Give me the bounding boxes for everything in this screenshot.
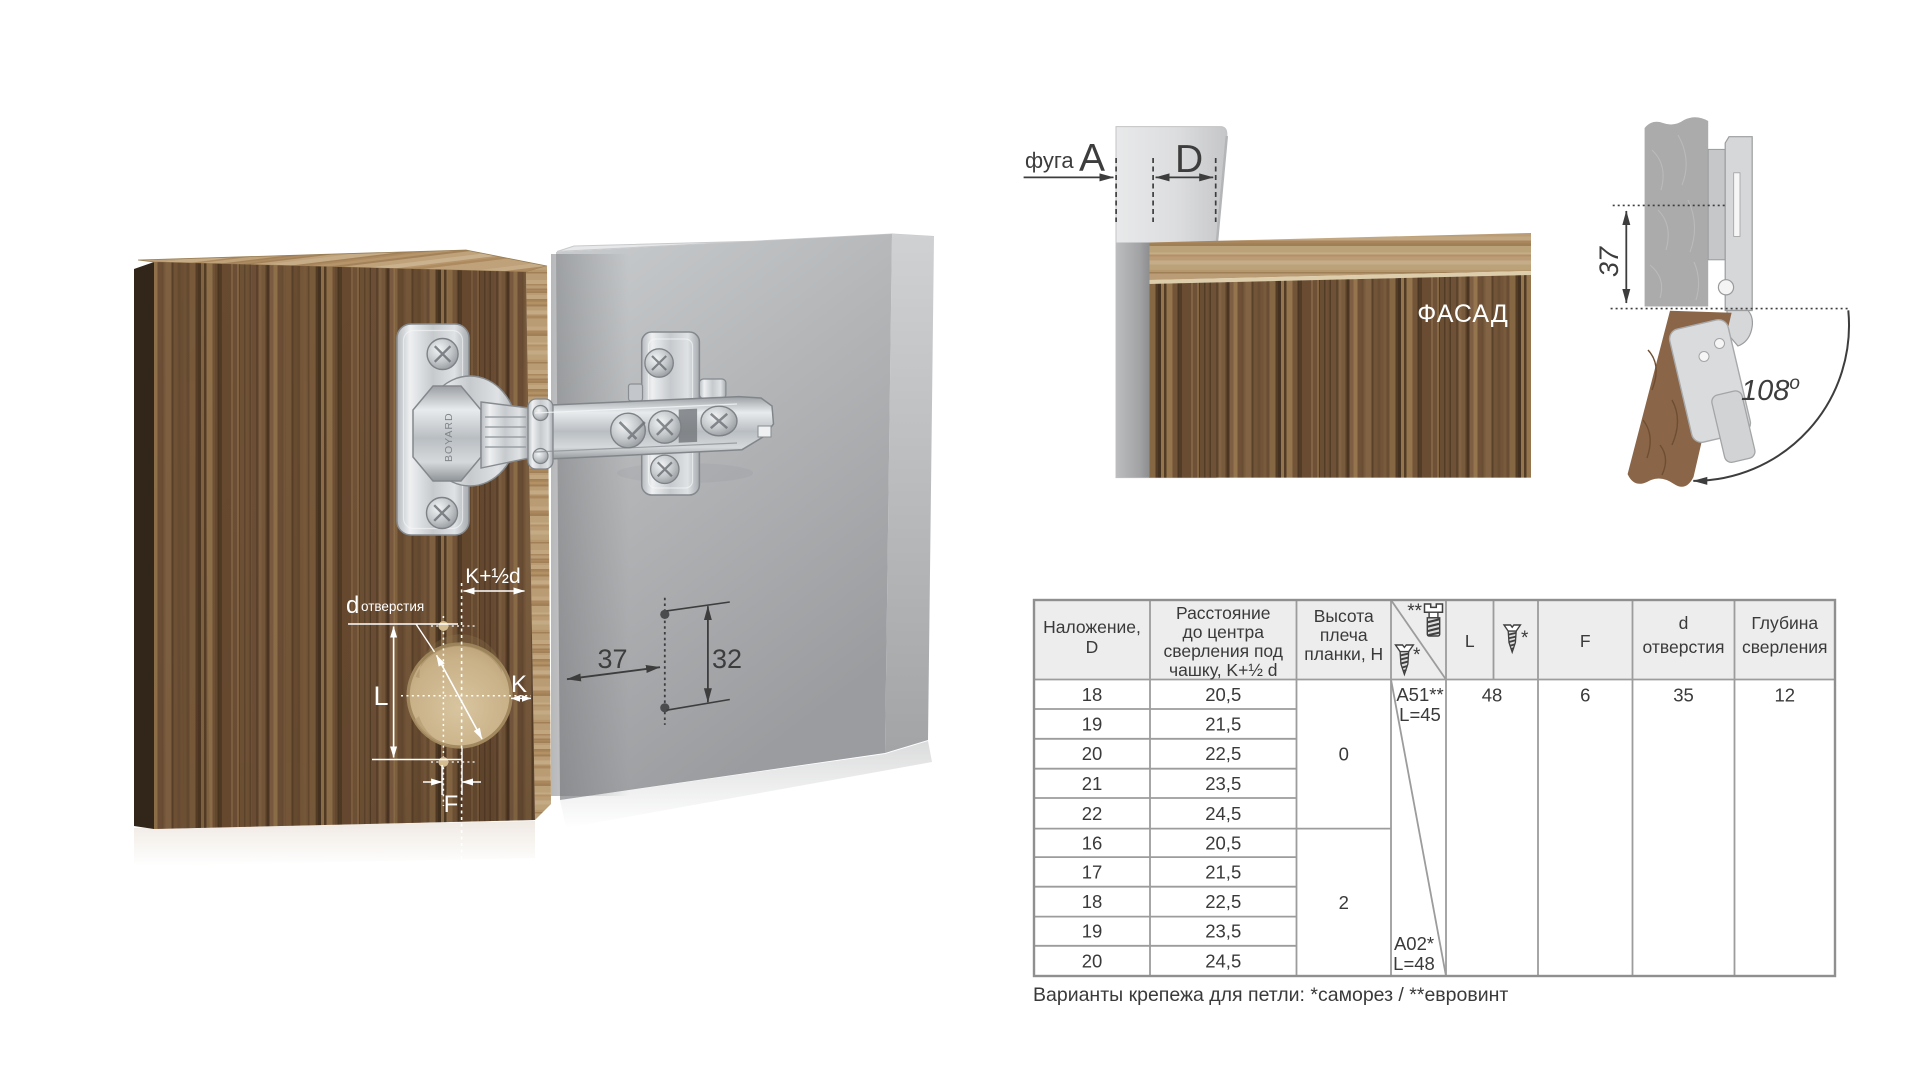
svg-text:2: 2 [1339, 892, 1349, 913]
svg-text:6: 6 [1580, 685, 1590, 706]
svg-text:отверстия: отверстия [361, 599, 424, 614]
svg-text:19: 19 [1082, 921, 1103, 942]
svg-text:Варианты крепежа для петли: *с: Варианты крепежа для петли: *саморез / *… [1033, 984, 1508, 1006]
svg-text:18: 18 [1082, 891, 1103, 912]
svg-text:24,5: 24,5 [1205, 803, 1241, 824]
svg-text:0: 0 [1339, 744, 1349, 765]
svg-text:32: 32 [712, 644, 742, 674]
svg-text:A51**L=45: A51**L=45 [1396, 684, 1443, 725]
svg-text:35: 35 [1673, 685, 1694, 706]
svg-text:23,5: 23,5 [1205, 773, 1241, 794]
svg-text:19: 19 [1082, 713, 1103, 734]
svg-text:18: 18 [1082, 684, 1103, 705]
svg-text:K: K [511, 671, 527, 698]
svg-text:K+½d: K+½d [465, 565, 520, 588]
svg-text:17: 17 [1082, 861, 1103, 882]
svg-text:20,5: 20,5 [1205, 684, 1241, 705]
svg-text:ФАСАД: ФАСАД [1417, 300, 1509, 328]
svg-text:фуга: фуга [1025, 148, 1074, 173]
svg-text:23,5: 23,5 [1205, 921, 1241, 942]
svg-text:20: 20 [1082, 743, 1103, 764]
svg-text:22,5: 22,5 [1205, 743, 1241, 764]
svg-text:21,5: 21,5 [1205, 713, 1241, 734]
svg-text:22: 22 [1082, 803, 1103, 824]
svg-text:L: L [373, 681, 388, 711]
svg-text:21: 21 [1082, 773, 1103, 794]
svg-text:A: A [1079, 137, 1105, 180]
svg-text:A02*L=48: A02*L=48 [1393, 933, 1435, 974]
svg-text:37: 37 [1594, 246, 1624, 277]
svg-text:BOYARD: BOYARD [443, 412, 455, 462]
svg-text:D: D [1175, 138, 1203, 181]
svg-text:20,5: 20,5 [1205, 832, 1241, 853]
svg-text:12: 12 [1774, 685, 1795, 706]
svg-text:16: 16 [1082, 832, 1103, 853]
svg-text:48: 48 [1482, 685, 1503, 706]
svg-text:24,5: 24,5 [1205, 950, 1241, 971]
svg-text:Расстояниедо центрасверления п: Расстояниедо центрасверления подчашку, K… [1164, 603, 1283, 680]
svg-text:F: F [444, 791, 459, 818]
svg-text:*: * [1413, 645, 1421, 666]
svg-text:37: 37 [597, 644, 627, 674]
svg-text:*: * [1521, 628, 1529, 649]
svg-text:21,5: 21,5 [1205, 861, 1241, 882]
svg-text:F: F [1580, 631, 1591, 651]
svg-text:d: d [346, 592, 359, 619]
svg-text:20: 20 [1082, 950, 1103, 971]
svg-text:**: ** [1407, 601, 1422, 622]
svg-text:22,5: 22,5 [1205, 891, 1241, 912]
svg-text:L: L [1465, 631, 1475, 651]
